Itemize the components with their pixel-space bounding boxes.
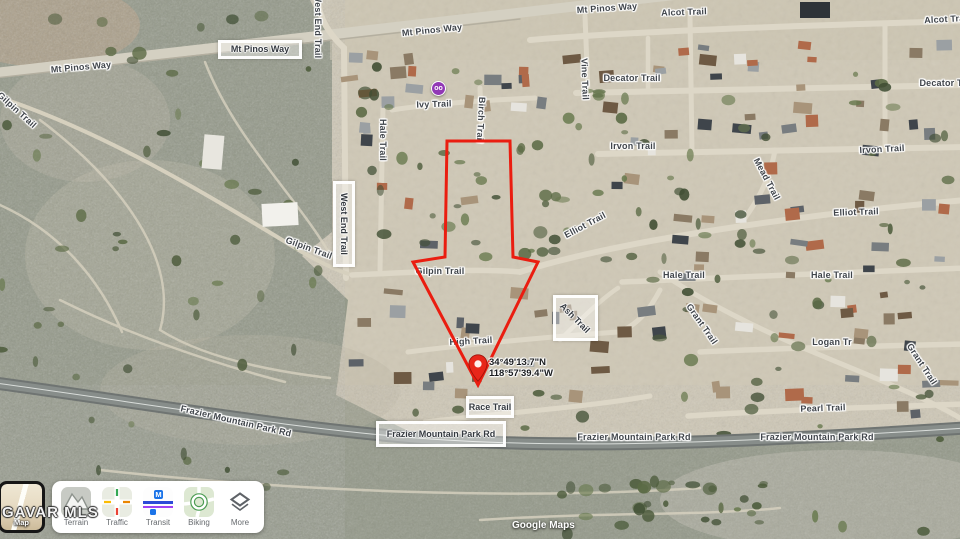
- terrain-icon: [61, 487, 91, 517]
- layer-item-label: Transit: [146, 518, 170, 527]
- map-mode-label: Map: [1, 518, 42, 527]
- map-viewport[interactable]: Mt Pinos WayMt Pinos WayMt Pinos WayAlco…: [0, 0, 960, 539]
- poi-glyph: oo: [434, 85, 443, 92]
- coordinates-latitude: 34°49'13.7"N: [489, 357, 553, 368]
- map-mode-button[interactable]: Map: [0, 481, 45, 533]
- layer-item-biking[interactable]: Biking: [179, 487, 219, 527]
- layer-item-label: Traffic: [106, 518, 128, 527]
- biking-icon: [184, 487, 214, 517]
- google-maps-attribution[interactable]: Google Maps: [512, 520, 575, 531]
- layers-more-icon: [225, 487, 255, 517]
- map-pin[interactable]: [468, 354, 488, 382]
- layer-item-label: Terrain: [64, 518, 88, 527]
- layer-item-label: Biking: [188, 518, 210, 527]
- traffic-icon: [102, 487, 132, 517]
- layers-panel: Terrain Traffic M: [52, 481, 264, 533]
- layer-item-terrain[interactable]: Terrain: [56, 487, 96, 527]
- transit-icon: M: [143, 487, 173, 517]
- pin-coordinates: 34°49'13.7"N 118°57'39.4"W: [489, 357, 553, 379]
- satellite-imagery: [0, 0, 960, 539]
- layer-item-traffic[interactable]: Traffic: [97, 487, 137, 527]
- layer-item-label: More: [231, 518, 249, 527]
- coordinates-longitude: 118°57'39.4"W: [489, 368, 553, 379]
- layer-item-transit[interactable]: M Transit: [138, 487, 178, 527]
- svg-text:M: M: [155, 490, 161, 499]
- purple-place-marker-icon[interactable]: oo: [431, 81, 446, 96]
- layer-item-more[interactable]: More: [220, 487, 260, 527]
